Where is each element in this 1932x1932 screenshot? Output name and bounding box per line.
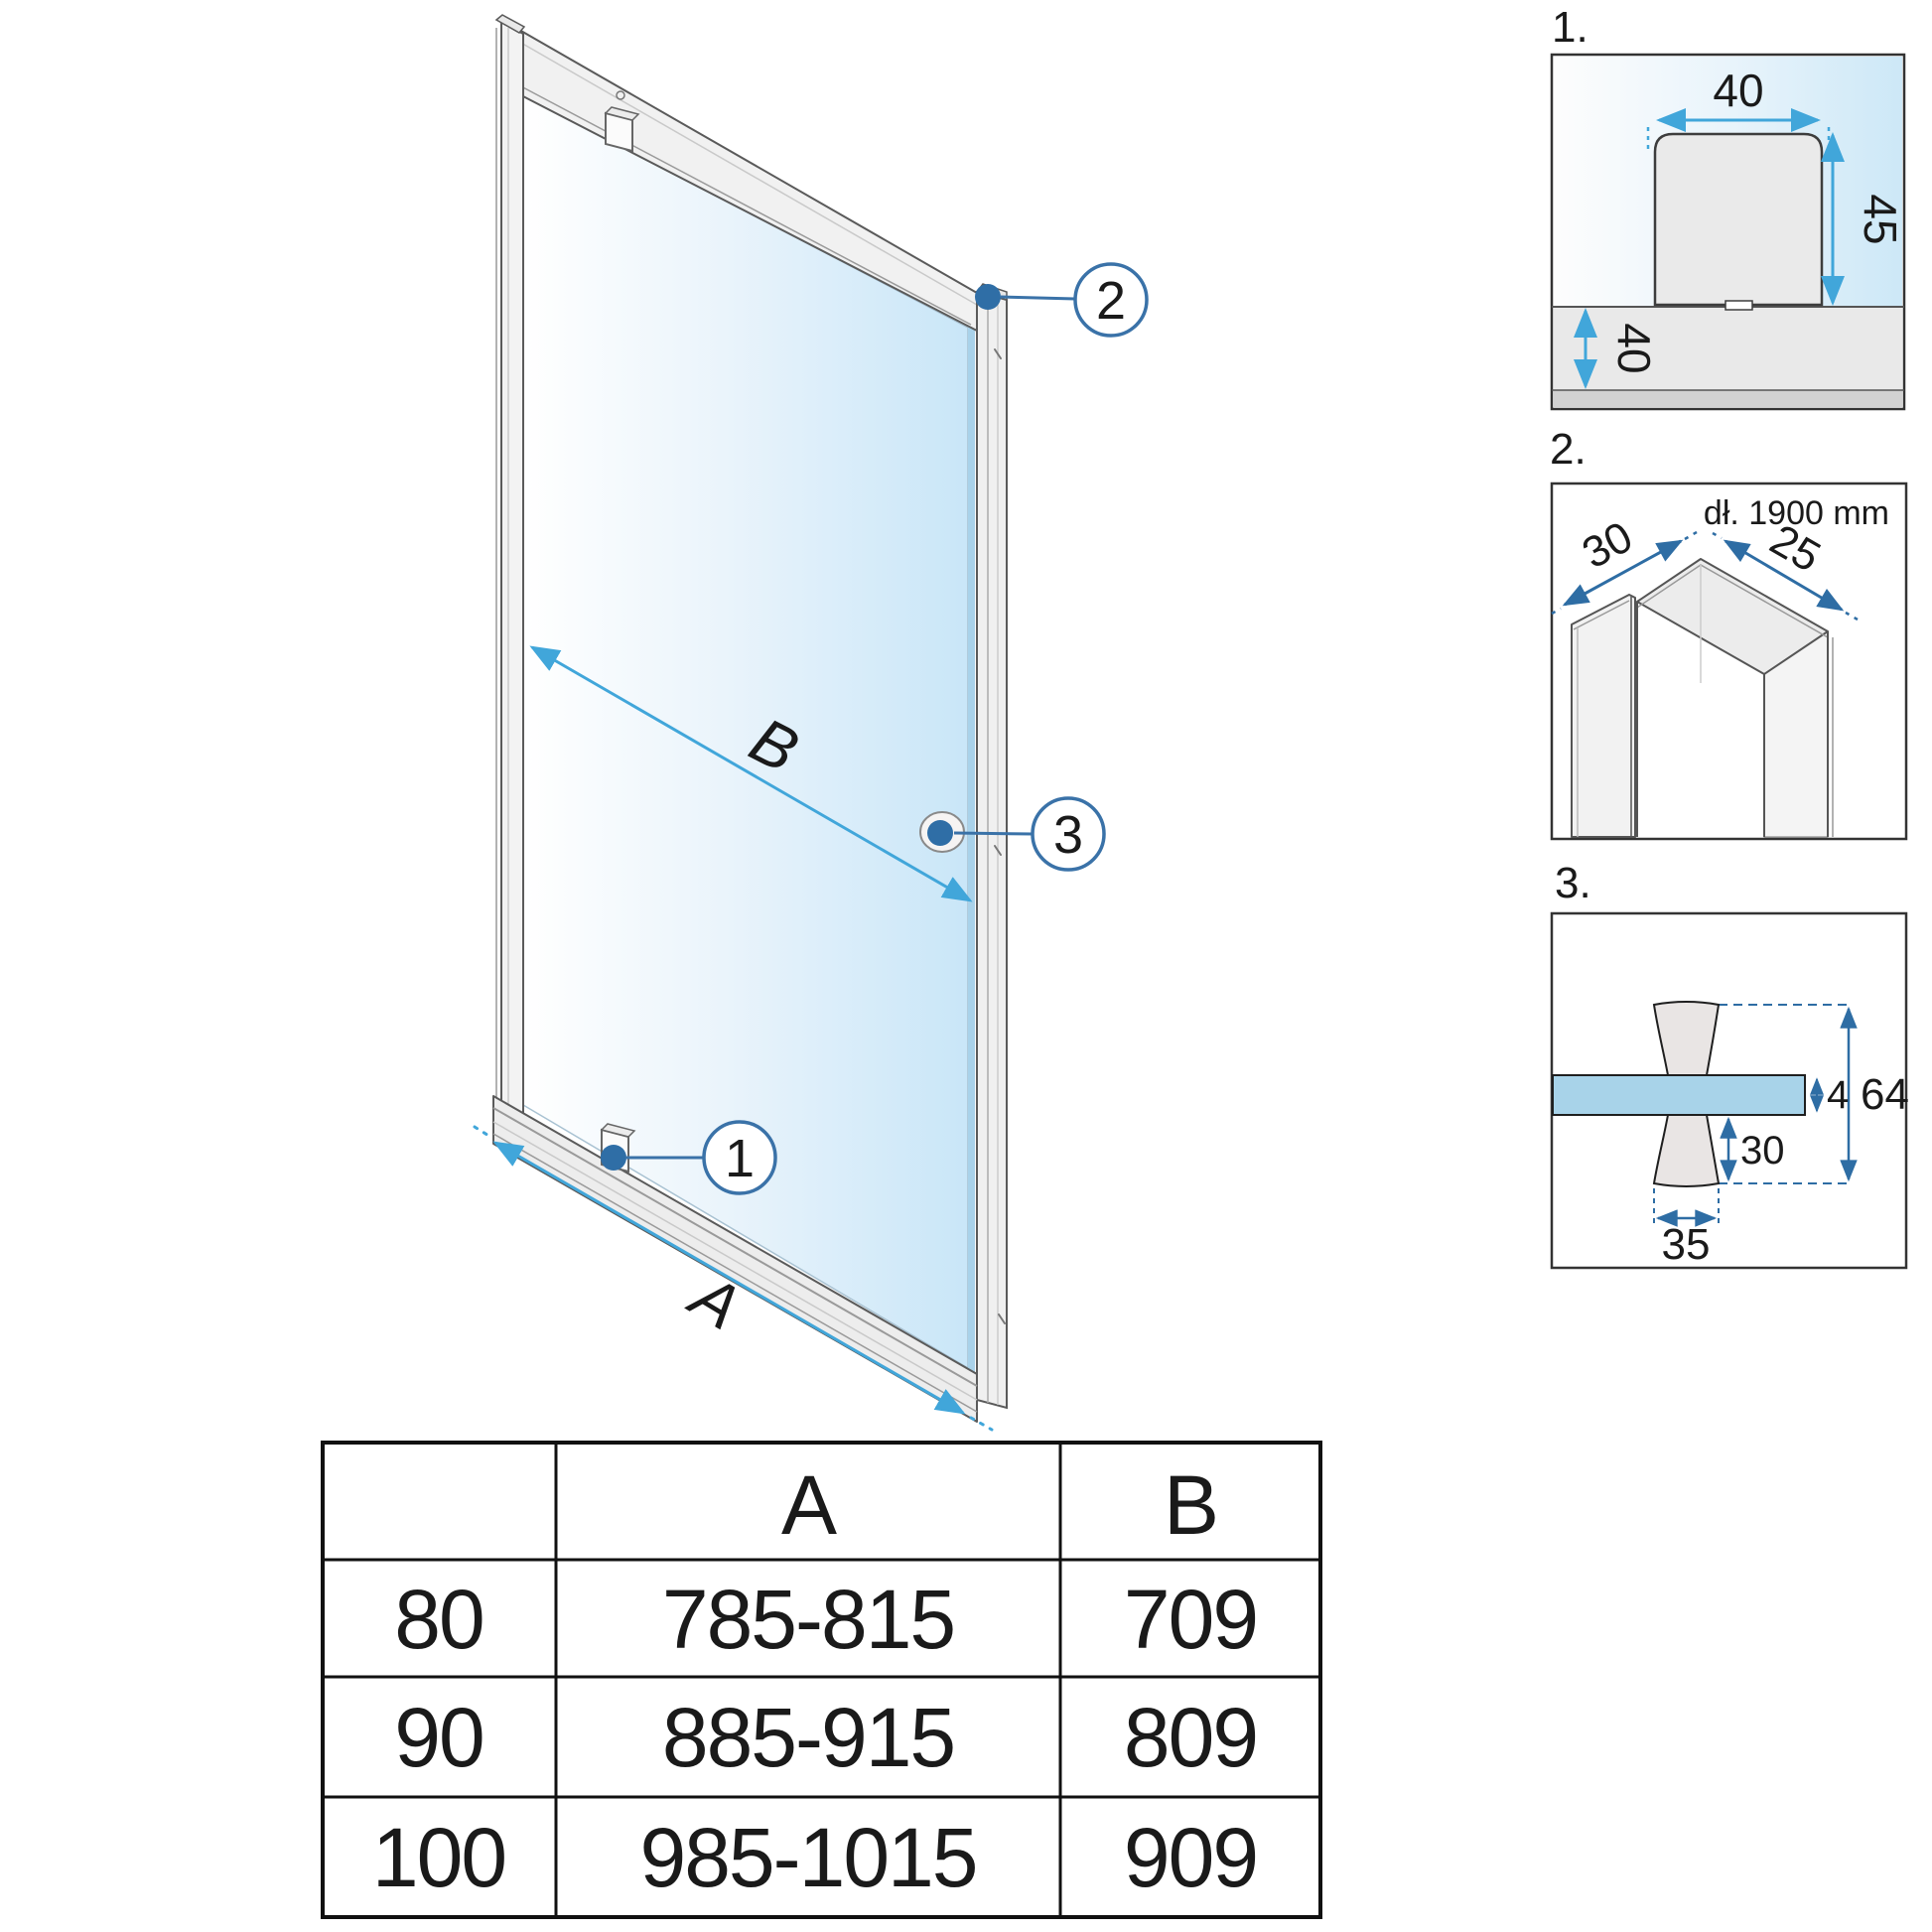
detail-1-height-label: 45: [1855, 194, 1906, 244]
callout-2-leader: [1001, 297, 1075, 299]
detail-1-sill-label: 40: [1608, 323, 1660, 373]
shower-door-spec-drawing: B A 1 2 3 1. 40 45: [0, 0, 1932, 1932]
table-row: 100 985-1015 909: [372, 1811, 1257, 1904]
detail-1-sill: [1554, 307, 1902, 390]
row-90-size: 90: [394, 1691, 483, 1784]
detail-1-sill-lower: [1554, 390, 1902, 407]
glass-right-edge: [968, 326, 975, 1372]
detail-3-label: 3.: [1555, 859, 1591, 907]
detail-3-panel: 3. 64 4 30 35: [1552, 859, 1909, 1269]
detail-1-width-label: 40: [1713, 65, 1763, 116]
callout-3-leader: [954, 833, 1033, 834]
row-100-size: 100: [372, 1811, 505, 1904]
callout-3-number: 3: [1053, 805, 1083, 865]
detail-1-panel: 1. 40 45 40: [1552, 3, 1906, 409]
detail-3-glass-bar: [1553, 1075, 1805, 1115]
dimension-a-ext-end: [971, 1418, 992, 1430]
detail-2-left-profile: [1572, 595, 1635, 837]
row-100-a: 985-1015: [640, 1811, 977, 1904]
callout-3-anchor-dot: [927, 820, 953, 846]
row-90-b: 809: [1124, 1691, 1257, 1784]
row-80-a: 785-815: [662, 1573, 954, 1666]
callout-2-anchor-dot: [975, 284, 1001, 310]
right-post: [977, 292, 1007, 1408]
row-100-b: 909: [1124, 1811, 1257, 1904]
row-90-a: 885-915: [662, 1691, 954, 1784]
row-80-size: 80: [394, 1573, 483, 1666]
size-table: A B 80 785-815 709 90 885-915 809 100 98…: [323, 1443, 1320, 1917]
main-door-diagram: B A 1 2 3: [475, 15, 1147, 1430]
callout-1-anchor-dot: [601, 1145, 626, 1171]
detail-3-knob-height-label: 30: [1740, 1129, 1785, 1173]
detail-2-label: 2.: [1550, 425, 1587, 474]
detail-1-bracket-foot: [1725, 301, 1752, 310]
technical-drawing-page: B A 1 2 3 1. 40 45: [0, 0, 1932, 1932]
dimension-a-ext-start: [475, 1127, 490, 1137]
size-table-header-b: B: [1164, 1458, 1217, 1552]
callout-1-number: 1: [725, 1129, 755, 1188]
callout-2-number: 2: [1096, 271, 1126, 331]
detail-3-glass-label: 4: [1827, 1073, 1849, 1117]
detail-3-knob-width-label: 35: [1662, 1220, 1711, 1269]
detail-2-panel: 2. dł. 1900 mm 30 25: [1550, 425, 1906, 839]
detail-1-label: 1.: [1552, 3, 1588, 52]
left-post: [501, 22, 523, 1132]
size-table-header-a: A: [781, 1458, 837, 1552]
detail-1-wall-bracket: [1655, 134, 1822, 305]
row-80-b: 709: [1124, 1573, 1257, 1666]
detail-3-total-label: 64: [1861, 1070, 1909, 1119]
